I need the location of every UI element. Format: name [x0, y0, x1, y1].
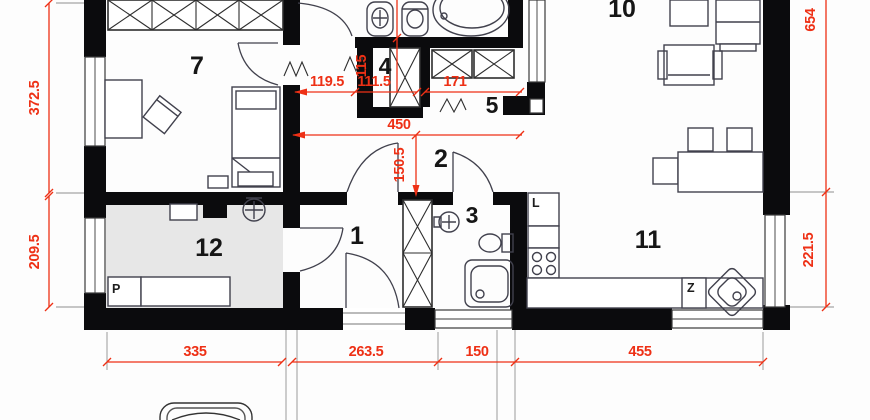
- dim-mid-a: 119.5: [310, 74, 344, 90]
- dishwasher-label: Z: [687, 281, 695, 295]
- room-label-5: 5: [486, 92, 499, 118]
- armchair: [664, 45, 714, 85]
- dim-right-upper: 654: [803, 8, 819, 32]
- room-label-2: 2: [434, 145, 448, 173]
- dining-chair: [688, 128, 713, 151]
- room-label-11: 11: [635, 226, 662, 254]
- door-bedroom: [238, 43, 278, 85]
- dim-bottom-a: 335: [183, 344, 207, 360]
- door-entrance: [346, 253, 399, 308]
- dim-mid-b: 115: [354, 55, 370, 78]
- desk-chair: [143, 96, 181, 134]
- fridge-label: L: [532, 196, 540, 210]
- dim-left-upper: 372.5: [27, 80, 43, 115]
- dim-left-lower: 209.5: [27, 234, 43, 269]
- desk: [105, 80, 142, 138]
- shower: [465, 260, 513, 307]
- nightstand: [208, 176, 228, 188]
- door-bathroom-top: [298, 3, 352, 36]
- toilet: [479, 234, 501, 252]
- utility-shelf: [170, 204, 197, 220]
- floor-plan-canvas: 372.5 209.5 654 221.5 119.5 111.5 115 17…: [0, 0, 870, 420]
- room-label-10: 10: [608, 0, 636, 23]
- dim-mid-f: 150.5: [392, 147, 408, 182]
- entrance-opening: [343, 308, 405, 330]
- cabinet-small: [530, 99, 543, 113]
- kitchen-counter: [527, 278, 763, 308]
- armchair-square: [670, 0, 708, 26]
- dim-right-lower: 221.5: [801, 232, 817, 267]
- dim-bottom-b: 263.5: [349, 344, 384, 360]
- dim-mid-d: 171: [443, 74, 467, 90]
- door-hall-utility: [300, 228, 343, 271]
- dining-chair: [727, 128, 752, 151]
- dim-bottom-d: 455: [628, 344, 652, 360]
- dining-table: [678, 152, 763, 192]
- toilet-top: [402, 2, 428, 36]
- room-label-7: 7: [190, 52, 204, 80]
- dining-chair: [653, 158, 678, 184]
- door-corridor-bath: [453, 152, 493, 192]
- dim-mid-e: 450: [387, 117, 411, 133]
- utility-counter: [141, 277, 230, 306]
- pillow: [236, 91, 276, 109]
- kitchen-cabinet: [528, 226, 559, 248]
- car: [160, 403, 252, 420]
- floor-plan: 372.5 209.5 654 221.5 119.5 111.5 115 17…: [0, 0, 870, 420]
- room-label-3: 3: [466, 202, 479, 228]
- bed-foot: [238, 172, 273, 186]
- room-label-12: 12: [195, 234, 223, 262]
- dim-bottom-c: 150: [465, 344, 489, 360]
- room-label-1: 1: [350, 222, 364, 250]
- room-label-4: 4: [379, 53, 392, 79]
- washing-machine-label: P: [112, 282, 120, 296]
- door-corridor-hall: [347, 143, 398, 192]
